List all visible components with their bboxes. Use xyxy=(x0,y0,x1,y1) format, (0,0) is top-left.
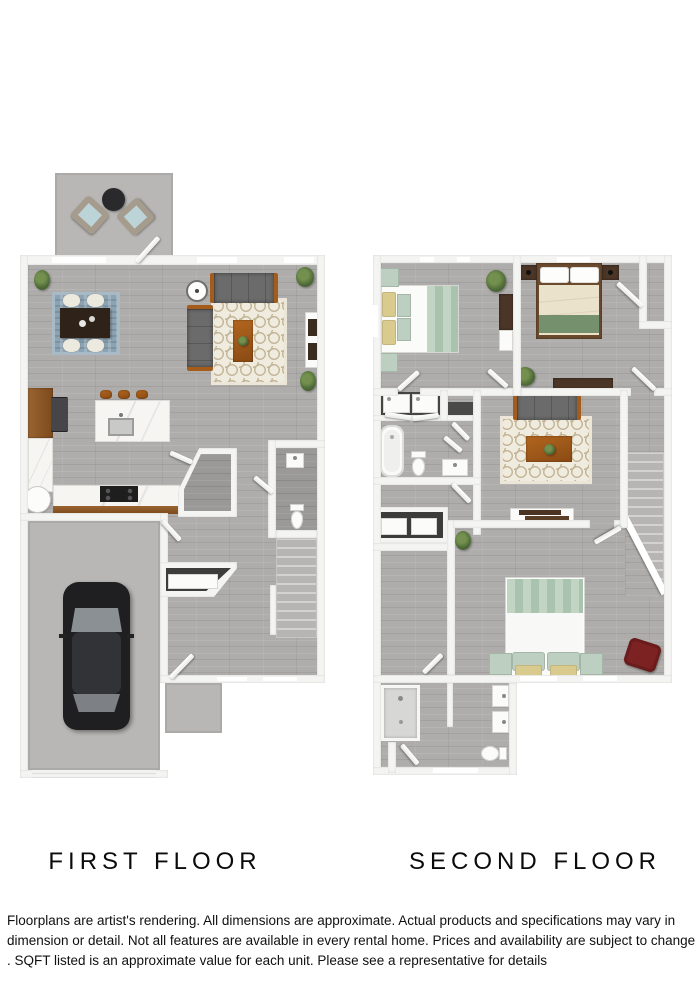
master-bottom-wall xyxy=(521,388,631,396)
disclaimer-text: Floorplans are artist's rendering. All d… xyxy=(7,911,699,971)
bed-pillow xyxy=(397,294,411,317)
bedroom1-bottom-wall xyxy=(420,388,513,396)
garage-right-wall xyxy=(160,513,168,683)
loft-coffee-table xyxy=(526,436,572,462)
dryer-dial xyxy=(416,397,420,401)
garage-door xyxy=(32,770,156,778)
dining-chair xyxy=(87,339,104,352)
dining-chair xyxy=(63,294,80,307)
staircase xyxy=(276,538,317,638)
laundry-divider-wall xyxy=(440,390,448,421)
linen-shelf xyxy=(411,518,437,535)
ottoman-cube xyxy=(489,653,512,675)
stair-side-wall xyxy=(270,585,276,635)
second-floor-label: SECOND FLOOR xyxy=(390,848,680,876)
bath-vanity xyxy=(492,711,509,733)
toilet xyxy=(411,451,426,477)
entry-stoop xyxy=(165,683,222,733)
dining-chair xyxy=(63,339,80,352)
walkin-closet-right-wall xyxy=(447,520,455,675)
disclaimer-line: . SQFT listed is an approximate value fo… xyxy=(7,951,699,971)
toilet-bowl xyxy=(291,511,303,529)
nightstand xyxy=(520,265,537,280)
bath-bottom-wall xyxy=(373,477,481,485)
ottoman-cube xyxy=(580,653,603,675)
sofa xyxy=(210,273,278,303)
corner-plant xyxy=(300,371,316,391)
walkin-closet-top-wall xyxy=(373,543,455,551)
toilet-tank xyxy=(290,504,304,511)
window xyxy=(284,257,314,263)
kitchen-counter-left-marble xyxy=(28,438,53,492)
car-mirror xyxy=(59,634,66,638)
window xyxy=(52,257,106,263)
loft-stair-wall xyxy=(620,390,628,528)
window xyxy=(373,305,378,337)
refrigerator xyxy=(51,397,68,432)
disclaimer-line: dimension or detail. Not all features ar… xyxy=(7,931,699,951)
sink-faucet xyxy=(453,463,457,467)
floor-lamp xyxy=(188,282,206,300)
garage-kitchen-wall xyxy=(20,513,168,521)
bedroom1-bottom-wall xyxy=(373,388,398,396)
first-floor-label: FIRST FLOOR xyxy=(10,848,300,876)
corner-plant xyxy=(455,531,471,550)
toilet-tank xyxy=(499,747,507,760)
water-heater xyxy=(25,487,50,512)
patio-chair-cushion xyxy=(78,203,102,227)
powder-stair-wall xyxy=(276,530,317,538)
bed-pillow xyxy=(540,267,569,283)
bar-stool xyxy=(100,390,112,399)
place-setting xyxy=(79,320,86,327)
window xyxy=(217,677,247,681)
disclaimer-line: Floorplans are artist's rendering. All d… xyxy=(7,911,699,931)
corner-plant xyxy=(34,270,50,290)
linen-shelf xyxy=(381,518,407,535)
bedroom3-top-wall xyxy=(453,520,590,528)
bed-blanket xyxy=(539,315,599,333)
sink-faucet xyxy=(502,720,506,724)
window xyxy=(263,677,297,681)
first-floor-plan xyxy=(20,170,325,782)
lamp-finial xyxy=(195,289,199,293)
car-roof xyxy=(72,632,121,694)
console-shelf xyxy=(308,319,317,336)
car-windshield xyxy=(71,608,122,632)
window xyxy=(557,257,590,262)
bath-vanity xyxy=(442,459,468,476)
powder-toilet xyxy=(290,504,304,530)
bedroom-divider-wall xyxy=(513,255,521,396)
console-shelf xyxy=(308,343,317,360)
window xyxy=(197,257,237,263)
bar-stool xyxy=(136,390,148,399)
table-plant xyxy=(544,444,555,455)
bath-right-wall xyxy=(473,390,481,535)
master-bottom-wall xyxy=(654,388,672,396)
car-rear-window xyxy=(73,694,120,712)
window xyxy=(433,768,478,773)
lamp xyxy=(608,270,613,275)
bed-blanket xyxy=(427,286,458,352)
exterior-wall-right xyxy=(317,255,325,683)
bed-pillow xyxy=(382,320,396,345)
nightstand xyxy=(602,265,619,280)
sink-faucet xyxy=(502,694,506,698)
loveseat xyxy=(187,305,213,371)
car xyxy=(63,582,130,730)
window xyxy=(583,676,617,681)
bathtub xyxy=(380,425,404,477)
dryer xyxy=(412,394,438,413)
bar-stool xyxy=(118,390,130,399)
bed-pillow xyxy=(570,267,599,283)
exterior-wall-right xyxy=(664,255,672,683)
lamp xyxy=(526,270,531,275)
dining-chair xyxy=(87,294,104,307)
patio-chair-cushion xyxy=(124,205,147,228)
linen-wall xyxy=(388,742,396,773)
window xyxy=(457,257,470,262)
tub-drain xyxy=(390,435,394,439)
place-setting xyxy=(89,316,95,322)
kitchen-counter-left xyxy=(28,388,53,438)
bath-vanity xyxy=(492,685,509,707)
linen-nook xyxy=(448,402,473,415)
bath-wing-right-wall xyxy=(509,683,517,775)
washer-dial xyxy=(387,397,391,401)
coat-closet-shelf xyxy=(168,574,218,589)
toilet-tank xyxy=(411,451,426,458)
sink-faucet xyxy=(293,456,297,460)
washer xyxy=(383,394,410,413)
corner-plant xyxy=(296,267,314,287)
car-mirror xyxy=(127,634,134,638)
toilet-bowl xyxy=(481,746,499,761)
dining-table xyxy=(60,308,110,338)
desk-top xyxy=(519,510,561,515)
dresser-base xyxy=(499,330,513,351)
shower xyxy=(381,685,420,741)
master-closet-wall xyxy=(639,255,647,327)
cooktop xyxy=(100,486,138,502)
patio-table xyxy=(102,188,125,211)
dresser xyxy=(499,294,513,330)
window xyxy=(520,676,557,681)
bed-pillow xyxy=(397,318,411,341)
bed-pillow xyxy=(382,292,396,317)
exterior-wall-top xyxy=(373,255,672,263)
island-sink xyxy=(108,418,134,436)
window xyxy=(420,257,434,262)
master-closet-wall xyxy=(639,321,672,329)
bed-blanket xyxy=(507,579,583,613)
powder-top-wall xyxy=(268,440,325,448)
powder-sink xyxy=(286,453,304,468)
corner-plant xyxy=(486,270,506,292)
second-floor-plan xyxy=(373,255,672,775)
toilet xyxy=(481,745,507,762)
shower-divider-wall xyxy=(447,683,453,727)
shower-head xyxy=(398,696,403,701)
coffee-table xyxy=(233,320,253,362)
loft-sofa xyxy=(513,392,581,420)
toilet-bowl xyxy=(412,458,425,476)
sink-faucet xyxy=(119,413,123,417)
table-plant xyxy=(238,336,248,346)
kitchen-island xyxy=(95,400,170,442)
shower-drain xyxy=(399,720,403,724)
bed-duvet xyxy=(507,613,583,655)
floorplan-sheet: FIRST FLOOR SECOND FLOOR Floorplans are … xyxy=(0,0,700,990)
